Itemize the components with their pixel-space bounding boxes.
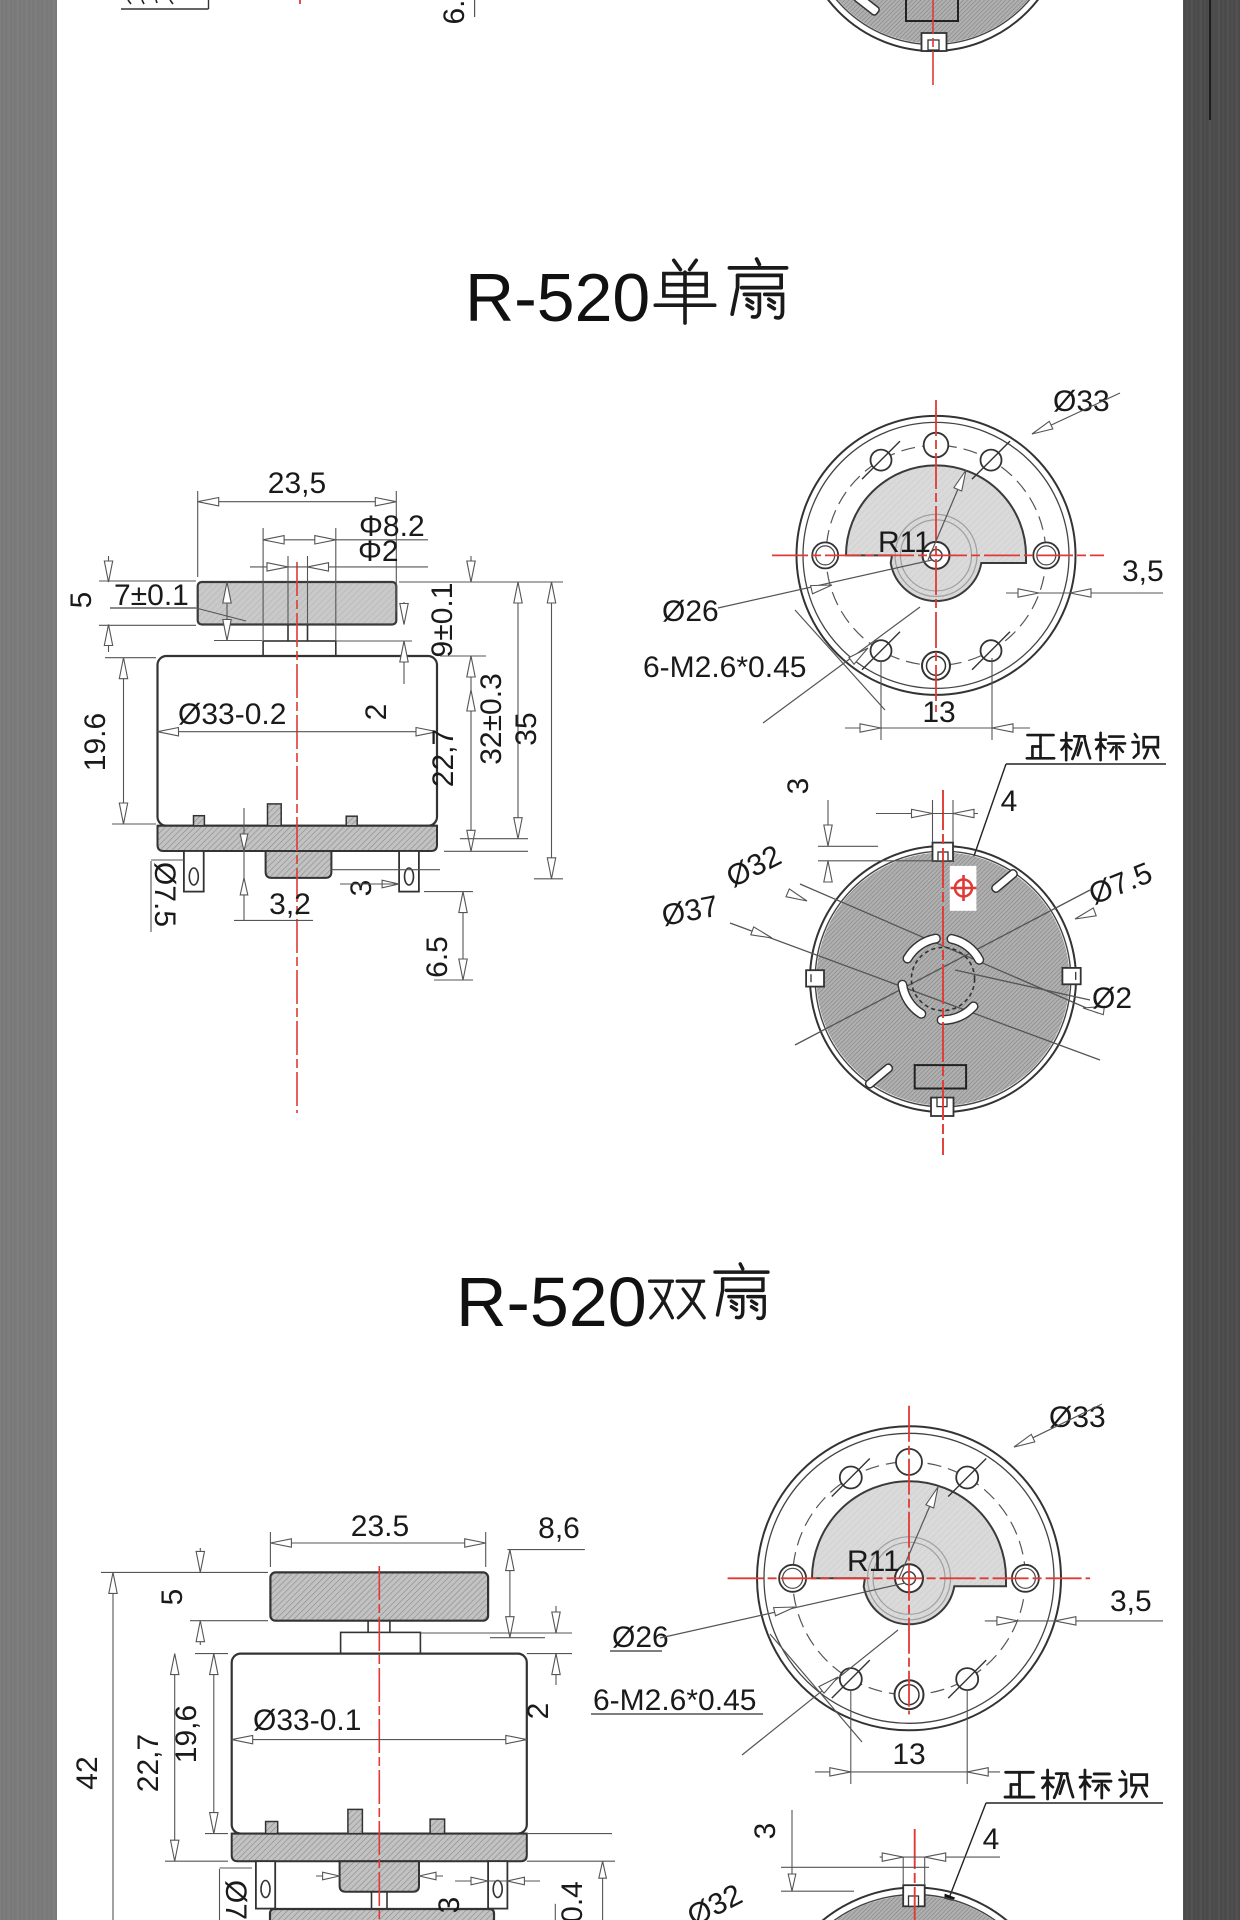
svg-text:7±0.1: 7±0.1 xyxy=(114,579,189,612)
svg-text:22,7: 22,7 xyxy=(427,729,460,787)
svg-text:Ø2: Ø2 xyxy=(1092,982,1132,1015)
svg-text:5: 5 xyxy=(156,1589,189,1606)
svg-text:32±0.3: 32±0.3 xyxy=(475,673,508,765)
svg-text:3: 3 xyxy=(749,1823,782,1840)
svg-text:R-520: R-520 xyxy=(456,1263,647,1341)
svg-text:4: 4 xyxy=(983,1823,1000,1856)
svg-text:Ø26: Ø26 xyxy=(662,595,719,628)
svg-text:22,7: 22,7 xyxy=(132,1734,165,1792)
svg-text:6.5: 6.5 xyxy=(421,936,454,978)
svg-text:0.4: 0.4 xyxy=(556,1881,589,1920)
svg-text:3: 3 xyxy=(782,778,815,795)
svg-text:13: 13 xyxy=(892,1738,925,1771)
svg-text:Ø33-0.1: Ø33-0.1 xyxy=(253,1704,361,1737)
svg-text:3: 3 xyxy=(345,880,378,897)
svg-text:4: 4 xyxy=(1001,785,1018,818)
svg-text:R11: R11 xyxy=(878,526,931,559)
svg-text:Ø33-0.2: Ø33-0.2 xyxy=(178,698,286,731)
svg-text:3,5: 3,5 xyxy=(1122,555,1164,588)
svg-text:2: 2 xyxy=(522,1703,555,1720)
svg-text:Ø7.5: Ø7.5 xyxy=(219,1880,252,1920)
svg-text:23,5: 23,5 xyxy=(268,467,326,500)
svg-text:3: 3 xyxy=(433,1897,466,1914)
svg-text:R-520: R-520 xyxy=(465,260,650,336)
svg-text:R11: R11 xyxy=(847,1545,900,1578)
svg-text:6-M2.6*0.45: 6-M2.6*0.45 xyxy=(593,1684,756,1717)
svg-text:6.: 6. xyxy=(438,0,471,25)
svg-text:5: 5 xyxy=(65,592,98,609)
svg-text:3,2: 3,2 xyxy=(269,888,311,921)
svg-text:Ø7.5: Ø7.5 xyxy=(148,862,181,927)
svg-text:35: 35 xyxy=(510,712,543,745)
svg-text:9±0.1: 9±0.1 xyxy=(426,583,459,658)
svg-text:2: 2 xyxy=(360,704,393,721)
svg-text:Φ2: Φ2 xyxy=(358,535,399,568)
svg-text:3,5: 3,5 xyxy=(1110,1585,1152,1618)
svg-text:23.5: 23.5 xyxy=(351,1510,409,1543)
svg-text:8,6: 8,6 xyxy=(538,1512,580,1545)
svg-text:6-M2.6*0.45: 6-M2.6*0.45 xyxy=(643,651,806,684)
svg-text:19.6: 19.6 xyxy=(79,713,112,771)
svg-text:42: 42 xyxy=(71,1756,104,1789)
svg-text:13: 13 xyxy=(922,696,955,729)
